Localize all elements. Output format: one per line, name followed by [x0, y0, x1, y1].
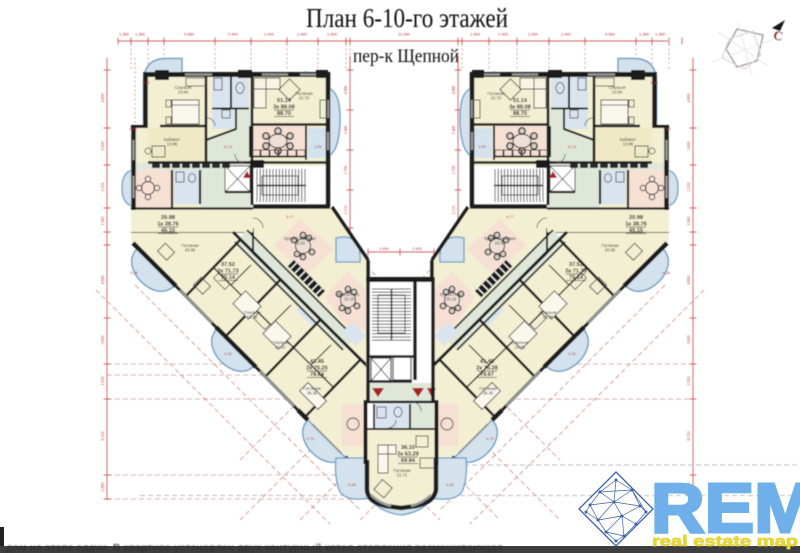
svg-text:1.380: 1.380	[655, 32, 666, 37]
svg-text:8.150: 8.150	[686, 432, 691, 441]
svg-text:1.380: 1.380	[639, 32, 650, 37]
svg-text:6.38: 6.38	[446, 483, 453, 487]
svg-text:1к 38.76: 1к 38.76	[625, 222, 646, 228]
svg-text:41.45: 41.45	[310, 359, 324, 365]
svg-text:88.70: 88.70	[513, 111, 527, 117]
svg-text:2.700: 2.700	[452, 166, 456, 175]
svg-text:2к 71.73: 2к 71.73	[565, 269, 586, 275]
svg-text:51.14: 51.14	[513, 98, 528, 104]
svg-text:11.280: 11.280	[398, 32, 411, 37]
svg-text:22.70: 22.70	[299, 96, 310, 101]
svg-text:51.14: 51.14	[277, 98, 292, 104]
svg-text:2к 63.29: 2к 63.29	[397, 452, 418, 458]
svg-text:4.980: 4.980	[605, 32, 616, 37]
svg-text:4.800: 4.800	[686, 276, 691, 285]
svg-text:2.400: 2.400	[264, 32, 275, 37]
svg-text:5.400: 5.400	[452, 126, 456, 135]
svg-text:15.36: 15.36	[247, 315, 258, 320]
svg-text:2.110: 2.110	[452, 206, 456, 215]
svg-text:3.600: 3.600	[100, 336, 105, 345]
svg-text:15.16: 15.16	[344, 297, 355, 302]
svg-text:real estate map: real estate map	[652, 533, 798, 550]
svg-text:пер-к Щепной: пер-к Щепной	[353, 47, 459, 67]
svg-text:75.14: 75.14	[221, 275, 236, 281]
svg-text:15.36: 15.36	[543, 315, 554, 320]
svg-text:2.400: 2.400	[412, 247, 422, 251]
svg-text:4.26: 4.26	[224, 352, 231, 356]
svg-text:2.110: 2.110	[686, 183, 691, 192]
svg-text:1к 38.76: 1к 38.76	[157, 222, 178, 228]
svg-text:1.50: 1.50	[129, 127, 136, 131]
svg-text:3.600: 3.600	[686, 336, 691, 345]
svg-text:36.35: 36.35	[483, 391, 494, 396]
svg-text:21.71: 21.71	[397, 473, 408, 478]
svg-text:12.96: 12.96	[623, 142, 634, 147]
svg-text:79.67: 79.67	[480, 372, 494, 378]
svg-text:2к 75.25: 2к 75.25	[306, 366, 327, 372]
svg-text:План 6-10-го этажей: План 6-10-го этажей	[306, 3, 508, 33]
svg-text:78.64: 78.64	[310, 372, 325, 378]
svg-text:4.20: 4.20	[142, 81, 149, 85]
svg-text:45.15: 45.15	[629, 228, 643, 234]
svg-text:4.800: 4.800	[686, 94, 691, 103]
svg-text:75.14: 75.14	[569, 275, 584, 281]
svg-text:15.16: 15.16	[446, 297, 457, 302]
svg-text:3к 88.08: 3к 88.08	[509, 105, 530, 111]
svg-text:1.900: 1.900	[686, 217, 691, 226]
svg-text:4.75: 4.75	[306, 437, 313, 441]
svg-text:12.96: 12.96	[167, 142, 178, 147]
svg-text:1.900: 1.900	[100, 217, 105, 226]
svg-text:2.400: 2.400	[528, 32, 539, 37]
svg-text:3.59: 3.59	[314, 145, 321, 149]
svg-text:20.98: 20.98	[161, 215, 175, 221]
svg-text:1.380: 1.380	[135, 32, 146, 37]
svg-text:2.900: 2.900	[100, 483, 105, 492]
svg-text:3к 88.08: 3к 88.08	[273, 105, 294, 111]
svg-text:22.70: 22.70	[491, 96, 502, 101]
svg-text:2.400: 2.400	[228, 32, 239, 37]
svg-text:3.600: 3.600	[100, 142, 105, 151]
svg-text:15.02: 15.02	[275, 345, 286, 350]
svg-text:3.59: 3.59	[478, 145, 485, 149]
svg-text:6.77: 6.77	[506, 215, 513, 219]
svg-text:1.500: 1.500	[327, 32, 338, 37]
svg-text:5.400: 5.400	[344, 126, 348, 135]
svg-text:15.52: 15.52	[495, 241, 506, 246]
svg-text:1.500: 1.500	[470, 32, 481, 37]
svg-text:2к 71.73: 2к 71.73	[217, 269, 238, 275]
svg-text:4.28: 4.28	[130, 271, 137, 275]
svg-text:6.77: 6.77	[286, 215, 293, 219]
svg-text:1.930: 1.930	[100, 377, 105, 386]
svg-text:36.35: 36.35	[307, 391, 318, 396]
svg-text:3.600: 3.600	[686, 142, 691, 151]
svg-text:8.150: 8.150	[100, 432, 105, 441]
svg-text:2.400: 2.400	[379, 247, 389, 251]
svg-text:2.110: 2.110	[344, 206, 348, 215]
svg-text:4.800: 4.800	[100, 276, 105, 285]
svg-text:4.980: 4.980	[452, 86, 456, 95]
svg-text:4.20: 4.20	[650, 81, 657, 85]
svg-text:2к 76.28: 2к 76.28	[476, 366, 497, 372]
svg-text:37.52: 37.52	[569, 262, 583, 268]
svg-text:15.52: 15.52	[295, 241, 306, 246]
svg-text:4.800: 4.800	[100, 94, 105, 103]
svg-text:11.11: 11.11	[568, 145, 577, 149]
svg-text:20.99: 20.99	[185, 248, 196, 253]
svg-text:36.10: 36.10	[401, 445, 415, 451]
svg-text:2.700: 2.700	[344, 166, 348, 175]
svg-text:1.50: 1.50	[663, 127, 670, 131]
svg-text:1.380: 1.380	[119, 32, 130, 37]
svg-text:4.980: 4.980	[344, 86, 348, 95]
svg-text:2.400: 2.400	[561, 32, 572, 37]
svg-text:41.45: 41.45	[480, 359, 494, 365]
svg-text:1.930: 1.930	[686, 377, 691, 386]
svg-text:2.110: 2.110	[100, 183, 105, 192]
svg-text:4.26: 4.26	[568, 352, 575, 356]
svg-text:11.11: 11.11	[224, 145, 233, 149]
svg-text:4.980: 4.980	[184, 32, 195, 37]
svg-text:4.75: 4.75	[486, 437, 493, 441]
svg-text:2.400: 2.400	[498, 32, 509, 37]
svg-text:88.70: 88.70	[277, 111, 291, 117]
svg-text:15.02: 15.02	[515, 345, 526, 350]
svg-text:6.38: 6.38	[348, 483, 355, 487]
svg-text:13.64: 13.64	[178, 90, 189, 95]
svg-text:45.15: 45.15	[161, 228, 175, 234]
svg-text:20.99: 20.99	[605, 248, 616, 253]
svg-text:13.64: 13.64	[612, 90, 623, 95]
svg-text:69.84: 69.84	[401, 458, 416, 464]
svg-text:2.400: 2.400	[297, 32, 308, 37]
svg-text:37.52: 37.52	[221, 262, 235, 268]
svg-text:20.98: 20.98	[629, 215, 643, 221]
svg-text:4.28: 4.28	[662, 271, 669, 275]
